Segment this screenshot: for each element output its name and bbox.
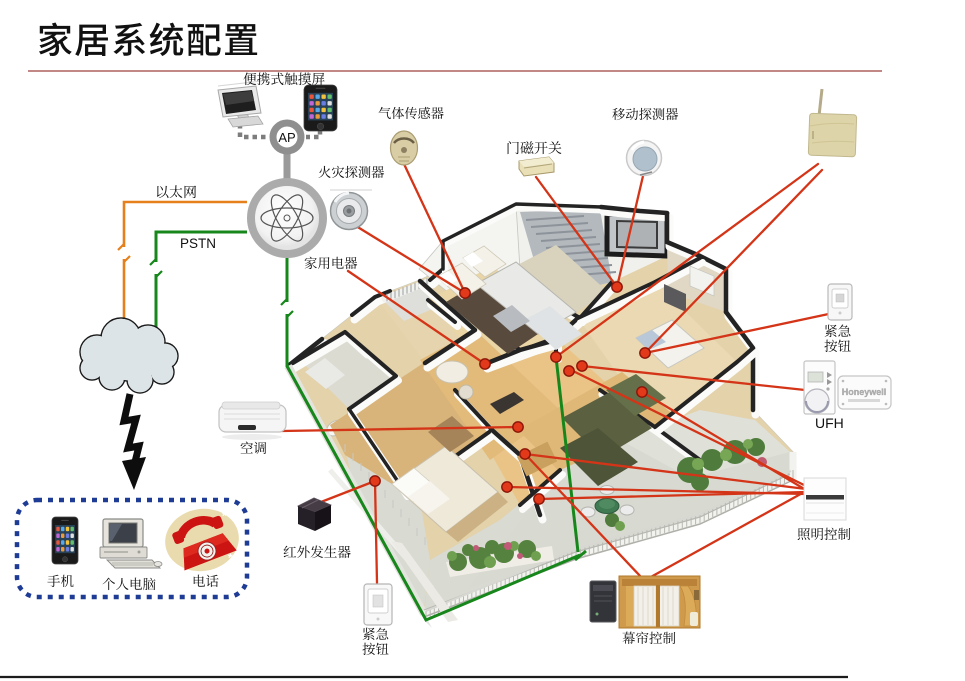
svg-text:Honeywell: Honeywell: [842, 387, 887, 397]
svg-text:*: *: [172, 561, 177, 575]
svg-text:*: *: [222, 509, 227, 523]
svg-text:*: *: [182, 505, 187, 519]
svg-text:*: *: [228, 551, 233, 565]
svg-text:UFH: UFH: [815, 415, 844, 431]
svg-text:PSTN: PSTN: [180, 236, 216, 251]
svg-text:AP: AP: [278, 130, 295, 145]
